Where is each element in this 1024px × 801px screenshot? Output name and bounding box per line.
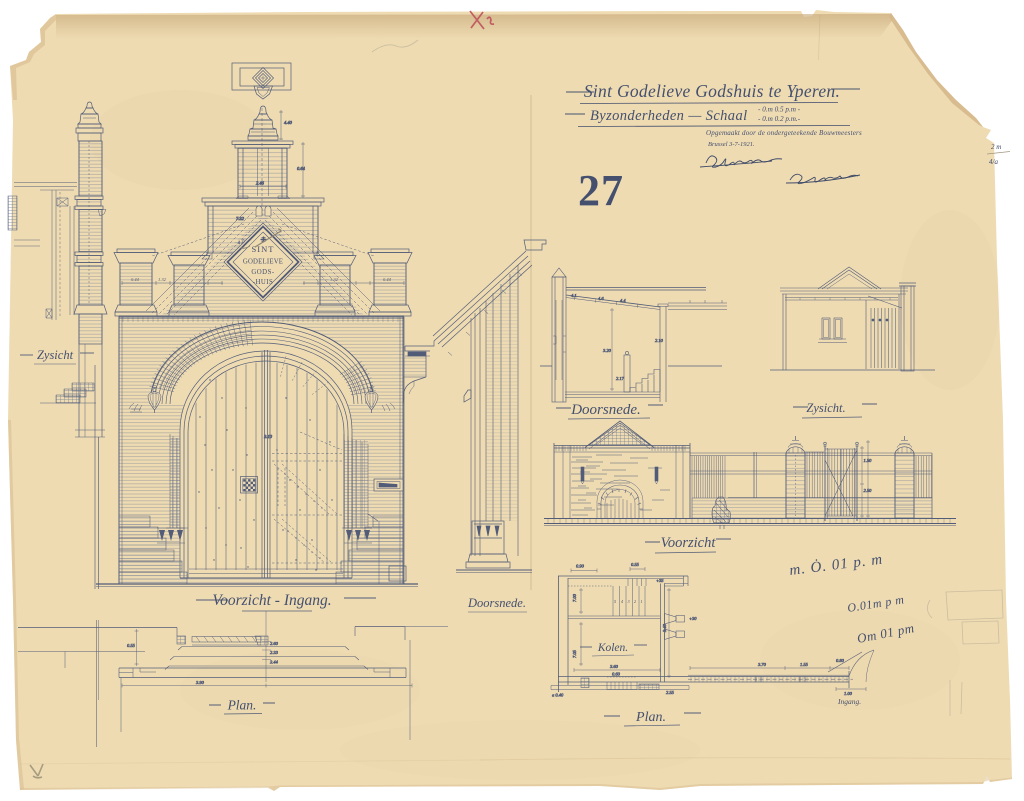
svg-text:2.50: 2.50 <box>864 488 873 493</box>
svg-text:Byzonderheden — Schaal: Byzonderheden — Schaal <box>590 108 748 124</box>
svg-text:3.10: 3.10 <box>264 434 273 439</box>
svg-text:Brussel 3-7-1921.: Brussel 3-7-1921. <box>708 141 755 148</box>
svg-text:Doorsnede.: Doorsnede. <box>467 596 526 610</box>
svg-text:0.60: 0.60 <box>612 672 621 677</box>
svg-text:+30: +30 <box>689 616 697 621</box>
svg-text:0.55: 0.55 <box>127 643 136 648</box>
svg-text:Kolen.: Kolen. <box>597 642 628 654</box>
svg-text:3.20: 3.20 <box>603 348 612 353</box>
svg-text:3.90: 3.90 <box>196 680 205 685</box>
svg-text:GODS-: GODS- <box>251 269 275 276</box>
svg-text:Sint Godelieve Godshuis te Ype: Sint Godelieve Godshuis te Yperen. <box>584 81 840 101</box>
svg-text:1: 1 <box>641 599 643 604</box>
svg-text:2 m: 2 m <box>991 143 1001 151</box>
svg-text:2.33: 2.33 <box>270 650 279 655</box>
svg-text:2.46: 2.46 <box>256 181 265 186</box>
svg-text:4: 4 <box>621 599 623 604</box>
svg-text:Voorzicht: Voorzicht <box>661 535 717 551</box>
svg-text:3.70: 3.70 <box>758 662 767 667</box>
svg-text:3.44: 3.44 <box>270 660 279 665</box>
svg-text:Voorzicht - Ingang.: Voorzicht - Ingang. <box>212 592 331 609</box>
svg-text:0.64: 0.64 <box>297 166 306 171</box>
svg-text:a 0.40: a 0.40 <box>552 693 564 698</box>
svg-text:0.80: 0.80 <box>836 658 845 663</box>
svg-text:-HUIS: -HUIS <box>253 279 274 286</box>
svg-text:1.55: 1.55 <box>800 662 809 667</box>
svg-text:0.90: 0.90 <box>576 564 585 569</box>
svg-text:7.00: 7.00 <box>572 593 577 602</box>
svg-text:3.40: 3.40 <box>662 623 667 632</box>
svg-text:Doorsnede.: Doorsnede. <box>570 402 641 418</box>
svg-text:1.00: 1.00 <box>844 691 853 696</box>
svg-text:4.6: 4.6 <box>598 296 604 301</box>
svg-text:2: 2 <box>634 599 636 604</box>
svg-text:1.32: 1.32 <box>158 277 167 282</box>
svg-text:2.10: 2.10 <box>655 338 664 343</box>
svg-text:4/a: 4/a <box>989 158 998 166</box>
svg-text:4.4: 4.4 <box>620 298 626 303</box>
svg-text:3.60: 3.60 <box>610 664 619 669</box>
svg-text:0.44: 0.44 <box>383 277 392 282</box>
svg-text:- 0.m 0.2 p.m.-: - 0.m 0.2 p.m.- <box>758 115 801 123</box>
svg-text:Plan.: Plan. <box>635 710 666 725</box>
svg-text:- 0.m 0.5 p.m -: - 0.m 0.5 p.m - <box>758 106 801 114</box>
svg-text:Zysicht.: Zysicht. <box>806 401 845 415</box>
svg-text:Opgemaakt door de ondergeteeke: Opgemaakt door de ondergeteekende Bouwme… <box>706 129 862 137</box>
svg-text:+35: +35 <box>656 578 664 583</box>
svg-text:SINT: SINT <box>252 244 275 254</box>
svg-text:4.40: 4.40 <box>284 120 293 125</box>
svg-text:3: 3 <box>628 599 630 604</box>
svg-text:7.05: 7.05 <box>572 649 577 658</box>
svg-text:0.44: 0.44 <box>131 277 140 282</box>
svg-text:GODELIEVE: GODELIEVE <box>243 259 283 266</box>
svg-text:27: 27 <box>578 166 624 215</box>
svg-text:2.55: 2.55 <box>666 690 675 695</box>
svg-text:5: 5 <box>614 599 616 604</box>
svg-text:Ingang.: Ingang. <box>837 697 861 706</box>
svg-text:Plan.: Plan. <box>227 698 257 713</box>
svg-text:0.55: 0.55 <box>631 562 640 567</box>
svg-text:2.17: 2.17 <box>616 376 625 381</box>
svg-text:1.50: 1.50 <box>864 458 873 463</box>
svg-text:1.32: 1.32 <box>330 277 339 282</box>
svg-text:4.1: 4.1 <box>571 293 577 298</box>
svg-text:2.60: 2.60 <box>270 641 279 646</box>
svg-text:Zysicht: Zysicht <box>37 348 74 362</box>
